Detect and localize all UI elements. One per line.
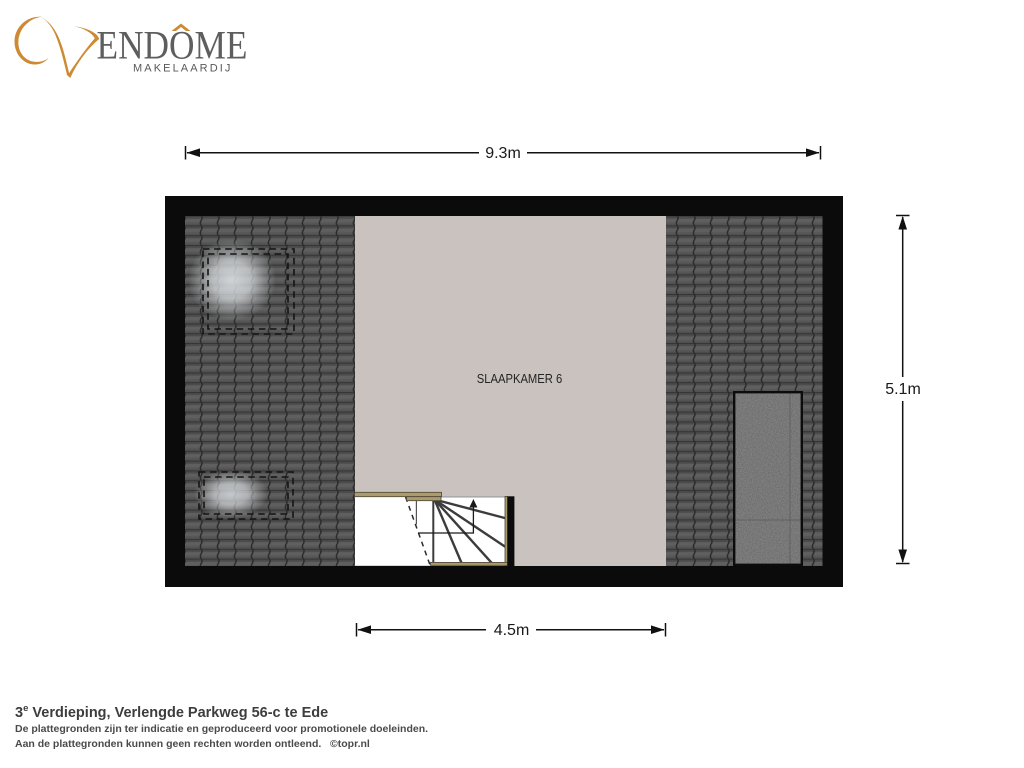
- svg-text:SLAAPKAMER 6: SLAAPKAMER 6: [477, 372, 563, 386]
- svg-text:5.1m: 5.1m: [885, 381, 921, 398]
- svg-text:9.3m: 9.3m: [485, 145, 521, 162]
- svg-text:4.5m: 4.5m: [494, 622, 530, 639]
